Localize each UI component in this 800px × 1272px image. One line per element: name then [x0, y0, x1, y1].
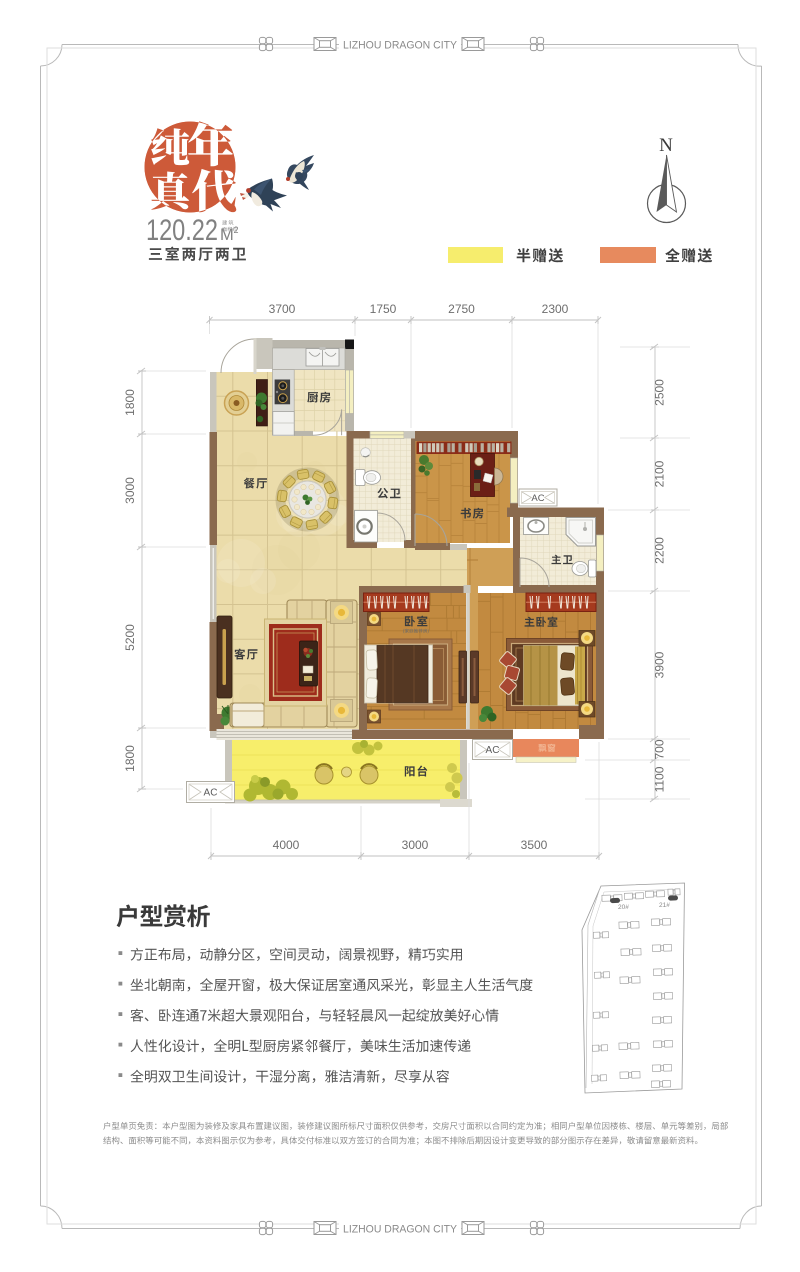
- svg-text:2300: 2300: [542, 302, 569, 316]
- svg-text:1100: 1100: [653, 766, 667, 792]
- svg-text:2100: 2100: [653, 460, 667, 487]
- svg-text:2750: 2750: [448, 302, 475, 316]
- svg-text:2200: 2200: [653, 537, 667, 564]
- svg-text:AC: AC: [204, 788, 218, 799]
- svg-text:1800: 1800: [123, 745, 137, 772]
- svg-text:N: N: [659, 135, 673, 156]
- svg-text:3900: 3900: [653, 651, 667, 678]
- svg-text:3000: 3000: [402, 838, 429, 852]
- svg-text:700: 700: [653, 739, 667, 759]
- svg-text:1800: 1800: [123, 389, 137, 416]
- svg-text:21#: 21#: [659, 902, 670, 909]
- svg-text:AC: AC: [531, 493, 544, 504]
- svg-text:3000: 3000: [123, 477, 137, 504]
- svg-text:LIZHOU DRAGON CITY: LIZHOU DRAGON CITY: [343, 1224, 458, 1236]
- svg-text:120.22: 120.22: [146, 214, 218, 247]
- svg-text:3500: 3500: [521, 838, 548, 852]
- svg-text:4000: 4000: [273, 838, 300, 852]
- svg-text:20#: 20#: [618, 904, 629, 911]
- svg-text:3700: 3700: [269, 302, 296, 316]
- svg-text:2: 2: [234, 225, 239, 235]
- svg-text:AC: AC: [486, 745, 500, 756]
- svg-text:2500: 2500: [653, 379, 667, 406]
- svg-text:LIZHOU DRAGON CITY: LIZHOU DRAGON CITY: [343, 40, 458, 52]
- svg-text:5200: 5200: [123, 624, 137, 651]
- svg-text:1750: 1750: [370, 302, 397, 316]
